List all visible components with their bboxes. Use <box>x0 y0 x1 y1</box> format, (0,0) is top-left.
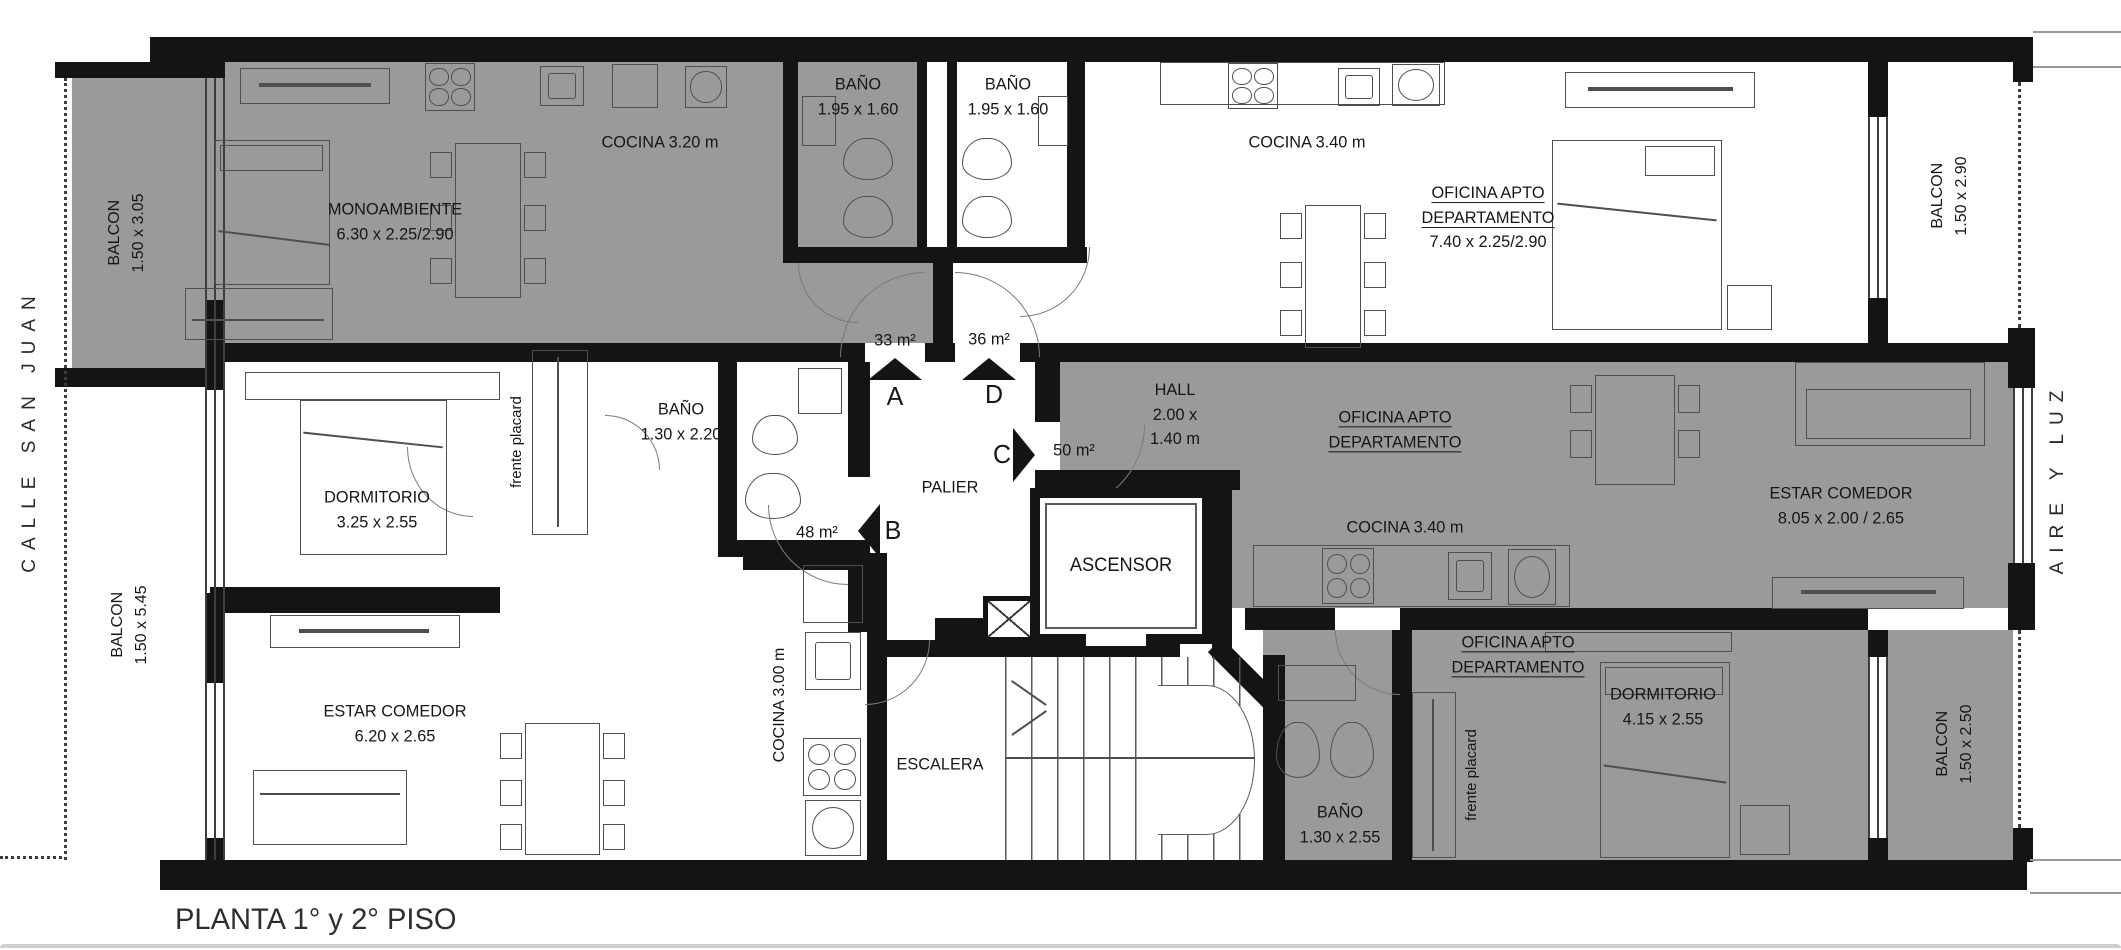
sofa <box>185 288 333 340</box>
chair <box>1280 213 1302 239</box>
chair <box>1570 385 1592 413</box>
label-closet-b: frente placard <box>506 396 529 488</box>
bath-sink <box>798 368 842 414</box>
tv-cabinet <box>1772 577 1964 609</box>
label-palier: PALIER <box>922 476 979 501</box>
closet <box>532 350 588 535</box>
chair <box>500 733 522 759</box>
stove <box>1228 63 1278 109</box>
bidet <box>843 196 893 238</box>
closet <box>1412 692 1456 858</box>
chair <box>1280 262 1302 288</box>
label-stairs: ESCALERA <box>896 753 983 778</box>
unit-c-area-label: 50 m² <box>1053 439 1095 464</box>
kitchen-unit <box>803 565 863 623</box>
bed <box>1552 140 1722 330</box>
chair <box>603 824 625 850</box>
elevator-label: ASCENSOR <box>1070 552 1172 580</box>
elevator-door-gap <box>1086 634 1146 646</box>
stove <box>425 63 475 111</box>
kitchen-sink <box>1338 68 1380 106</box>
label-bedroom-c: DORMITORIO4.15 x 2.55 <box>1610 682 1716 731</box>
chair <box>1678 385 1700 413</box>
chair <box>430 258 452 284</box>
chair <box>603 733 625 759</box>
page-divider <box>0 944 2121 948</box>
dining-table <box>455 143 521 298</box>
label-monoambiente: MONOAMBIENTE6.30 x 2.25/2.90 <box>328 197 462 246</box>
street-label-right: AIRE Y LUZ <box>2044 382 2073 575</box>
arrow-left-b-icon <box>858 504 880 558</box>
washer <box>1508 549 1556 605</box>
railing-left <box>64 78 67 860</box>
dining-table <box>1595 375 1675 485</box>
label-bath-b: BAÑO1.30 x 2.20 <box>641 397 722 446</box>
label-office-c: OFICINA APTO DEPARTAMENTO <box>1328 405 1461 454</box>
label-balcony-bottom-left: BALCON1.50 x 5.45 <box>106 585 154 664</box>
bed <box>215 140 330 285</box>
sofa <box>1795 362 1985 446</box>
toilet <box>843 138 893 180</box>
dresser <box>240 68 390 104</box>
bidet <box>752 415 798 455</box>
unit-a-area-label: 33 m² <box>874 329 916 354</box>
context-line <box>2030 859 2121 861</box>
bidet <box>1330 722 1374 778</box>
arrow-up-a-icon <box>868 358 922 380</box>
kitchen-sink <box>1448 552 1492 600</box>
tv-cabinet <box>270 615 460 648</box>
stove <box>1322 548 1374 604</box>
kitchen-unit <box>612 64 658 108</box>
context-line <box>2033 66 2121 68</box>
chair <box>1678 430 1700 458</box>
washer <box>1392 64 1440 106</box>
washer <box>685 66 727 108</box>
chair <box>500 824 522 850</box>
chair <box>603 780 625 806</box>
dining-table <box>1305 205 1361 348</box>
unit-b-letter: B <box>885 512 902 550</box>
toilet <box>745 473 801 519</box>
unit-c-letter: C <box>993 436 1011 474</box>
stove <box>803 738 861 796</box>
chair <box>1570 430 1592 458</box>
floor-plan: ASCENSOR 33 m² A 36 m² D C 50 m² 48 m² B… <box>0 0 2121 950</box>
chair <box>524 152 546 178</box>
washer <box>805 800 861 856</box>
chair <box>1280 310 1302 336</box>
kitchen-sink <box>540 66 584 106</box>
door-arc-stairs <box>865 640 930 705</box>
label-living-c: ESTAR COMEDOR8.05 x 2.00 / 2.65 <box>1770 481 1913 530</box>
headboard-shelf <box>245 372 500 400</box>
sidewalk-dotted-line <box>0 856 62 859</box>
elevator: ASCENSOR <box>1030 488 1212 644</box>
label-balcony-bottom-right: BALCON1.50 x 2.50 <box>1931 704 1979 783</box>
door-arc-bath-d <box>1020 247 1090 317</box>
dining-table <box>525 723 600 855</box>
sofa <box>253 770 407 845</box>
label-bedroom-b: DORMITORIO3.25 x 2.55 <box>324 485 430 534</box>
chair <box>524 205 546 231</box>
dresser <box>1565 72 1755 108</box>
unit-d-letter: D <box>985 376 1003 414</box>
unit-d-area-label: 36 m² <box>968 328 1010 353</box>
unit-a-letter: A <box>887 378 904 416</box>
chair <box>524 258 546 284</box>
label-kitchen-a: COCINA 3.20 m <box>602 131 719 156</box>
plan-title: PLANTA 1° y 2° PISO <box>175 903 457 937</box>
label-balcony-top-left: BALCON1.50 x 3.05 <box>103 193 151 272</box>
label-bath-d: BAÑO1.95 x 1.60 <box>968 72 1049 121</box>
unit-b-area-label: 48 m² <box>796 521 838 546</box>
nightstand <box>1727 285 1772 330</box>
label-kitchen-b: COCINA 3.00 m <box>768 648 792 763</box>
chair <box>1364 310 1386 336</box>
street-label-left: CALLE SAN JUAN <box>16 287 45 572</box>
label-bath-a: BAÑO1.95 x 1.60 <box>818 72 899 121</box>
railing-bottom-right <box>2018 630 2021 828</box>
shaft-box <box>983 596 1035 642</box>
label-balcony-top-right: BALCON1.50 x 2.90 <box>1926 156 1974 235</box>
chair <box>1364 213 1386 239</box>
label-bath-c: BAÑO1.30 x 2.55 <box>1300 800 1381 849</box>
label-office-d: OFICINA APTO DEPARTAMENTO 7.40 x 2.25/2.… <box>1421 181 1554 255</box>
toilet <box>962 138 1012 180</box>
nightstand <box>1740 805 1790 855</box>
bidet <box>962 196 1012 238</box>
bath-sink <box>1278 665 1356 701</box>
toilet <box>1276 722 1320 778</box>
context-line <box>2033 31 2121 33</box>
chair <box>500 780 522 806</box>
label-closet-c: frente placard <box>1461 729 1484 821</box>
kitchen-sink <box>805 632 861 690</box>
window-band-right <box>2013 388 2033 563</box>
window-band-bottom-right <box>1868 657 1888 838</box>
railing-top-right <box>2018 82 2021 328</box>
label-kitchen-c: COCINA 3.40 m <box>1347 516 1464 541</box>
label-living-b: ESTAR COMEDOR6.20 x 2.65 <box>324 699 467 748</box>
context-line <box>2030 892 2121 894</box>
label-kitchen-d: COCINA 3.40 m <box>1249 131 1366 156</box>
label-hall-c: HALL2.00 x1.40 m <box>1150 378 1200 452</box>
label-office-c2: OFICINA APTO DEPARTAMENTO <box>1451 630 1584 679</box>
arrow-right-c-icon <box>1013 428 1035 482</box>
stair-landing-line <box>1005 757 1255 759</box>
stair-return <box>1158 685 1255 835</box>
chair <box>430 152 452 178</box>
window-band-top-right <box>1868 117 1888 298</box>
chair <box>1364 262 1386 288</box>
